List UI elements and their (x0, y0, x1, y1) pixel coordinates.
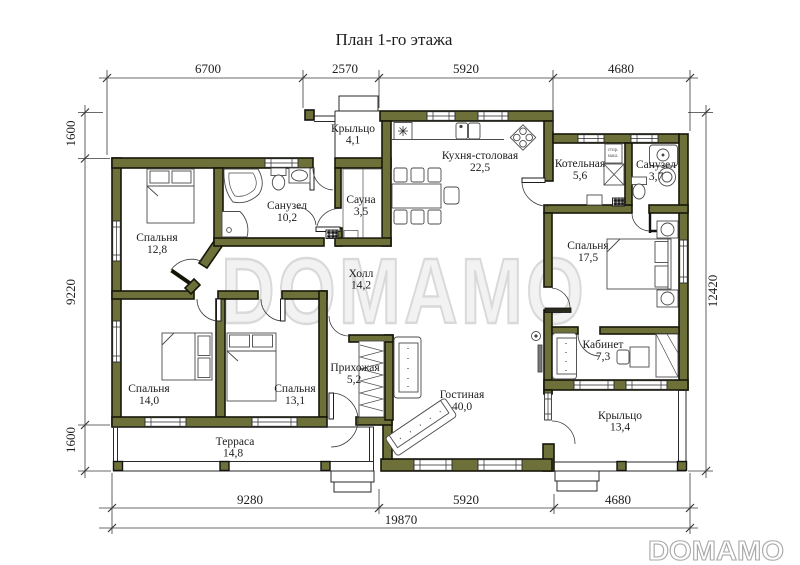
svg-text:4680: 4680 (608, 61, 634, 76)
svg-text:1600: 1600 (63, 427, 78, 453)
svg-text:9280: 9280 (237, 492, 263, 507)
svg-text:12,8: 12,8 (147, 244, 167, 256)
svg-text:5,6: 5,6 (573, 170, 588, 182)
svg-text:DOMAMO: DOMAMO (221, 239, 587, 343)
svg-text:2570: 2570 (332, 61, 358, 76)
svg-text:22,5: 22,5 (470, 162, 490, 174)
svg-text:Спальня: Спальня (567, 240, 609, 252)
svg-text:17,5: 17,5 (578, 252, 598, 264)
svg-text:DOMAMO: DOMAMO (648, 535, 784, 565)
svg-text:Крыльцо: Крыльцо (331, 123, 375, 135)
svg-text:9220: 9220 (63, 279, 78, 305)
svg-text:Спальня: Спальня (274, 383, 316, 395)
svg-text:5920: 5920 (453, 61, 479, 76)
svg-text:Спальня: Спальня (136, 232, 178, 244)
svg-text:Санузел: Санузел (267, 200, 307, 212)
svg-text:6700: 6700 (195, 61, 221, 76)
svg-text:14,2: 14,2 (351, 280, 371, 292)
svg-text:Кухня-столовая: Кухня-столовая (442, 150, 519, 162)
svg-text:3,7: 3,7 (649, 171, 664, 183)
svg-text:Санузел: Санузел (636, 159, 676, 171)
svg-text:4,1: 4,1 (346, 135, 361, 147)
svg-text:Холл: Холл (349, 268, 374, 280)
svg-text:1600: 1600 (63, 121, 78, 147)
svg-text:стир.: стир. (608, 148, 619, 153)
svg-text:14,0: 14,0 (139, 395, 159, 407)
svg-text:Гостиная: Гостиная (440, 389, 485, 401)
svg-text:5,2: 5,2 (347, 374, 362, 386)
svg-text:Сауна: Сауна (346, 194, 375, 206)
svg-text:План 1-го этажа: План 1-го этажа (336, 30, 453, 49)
svg-text:Прихожая: Прихожая (330, 362, 380, 374)
svg-text:14,8: 14,8 (223, 448, 243, 460)
svg-text:7,3: 7,3 (596, 351, 611, 363)
svg-text:Спальня: Спальня (128, 383, 170, 395)
svg-text:3,5: 3,5 (354, 206, 369, 218)
svg-text:13,4: 13,4 (610, 422, 630, 434)
svg-text:маш.: маш. (608, 154, 618, 159)
svg-text:Крыльцо: Крыльцо (598, 410, 642, 422)
svg-text:10,2: 10,2 (277, 212, 297, 224)
svg-text:12420: 12420 (705, 275, 720, 308)
svg-text:19870: 19870 (385, 512, 418, 527)
svg-text:5920: 5920 (453, 492, 479, 507)
svg-text:Терраса: Терраса (216, 436, 255, 448)
svg-text:40,0: 40,0 (452, 401, 472, 413)
svg-text:13,1: 13,1 (285, 395, 305, 407)
svg-text:Котельная: Котельная (555, 158, 606, 170)
svg-text:4680: 4680 (605, 492, 631, 507)
svg-text:Кабинет: Кабинет (583, 339, 624, 351)
